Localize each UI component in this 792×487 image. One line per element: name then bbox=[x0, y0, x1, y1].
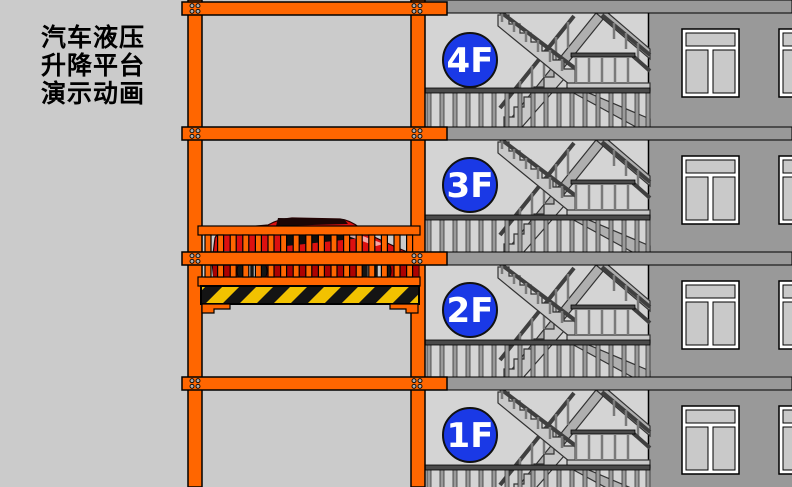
frame-beam-2f bbox=[182, 377, 447, 390]
floor-badge-label: 4F bbox=[447, 41, 494, 81]
floor-badge-label: 1F bbox=[447, 416, 494, 456]
animation-stage: 汽车液压 升降平台 演示动画 bbox=[0, 0, 792, 487]
fence-top-rail bbox=[198, 226, 420, 235]
floor-badge-4f: 4F bbox=[443, 33, 497, 87]
platform-bracket-left bbox=[202, 304, 230, 313]
window-3f bbox=[682, 156, 739, 224]
floor-badge-label: 2F bbox=[447, 291, 494, 331]
frame-beam-top bbox=[182, 2, 447, 15]
lift-scene: 4F 3F 2F 1F bbox=[0, 0, 792, 487]
fence-bottom-rail bbox=[198, 277, 420, 286]
window-4f bbox=[682, 29, 739, 97]
window-2f-right bbox=[779, 281, 792, 349]
floor-slab-2f bbox=[424, 377, 792, 390]
floor-slab-4f bbox=[424, 127, 792, 140]
window-1f bbox=[682, 406, 739, 474]
floor-badge-2f: 2F bbox=[443, 283, 497, 337]
window-2f bbox=[682, 281, 739, 349]
floor-badge-3f: 3F bbox=[443, 158, 497, 212]
floor-slab-3f bbox=[424, 252, 792, 265]
window-4f-right bbox=[779, 29, 792, 97]
floor-badge-label: 3F bbox=[447, 166, 494, 206]
platform-bracket-right bbox=[390, 304, 418, 313]
frame-beam-4f bbox=[182, 127, 447, 140]
window-3f-right bbox=[779, 156, 792, 224]
frame-beam-3f bbox=[182, 252, 447, 265]
window-1f-right bbox=[779, 406, 792, 474]
hazard-stripe-platform bbox=[201, 286, 419, 304]
floor-badge-1f: 1F bbox=[443, 408, 497, 462]
floor-slab-roof bbox=[424, 0, 792, 13]
lift-column-left bbox=[188, 0, 202, 487]
